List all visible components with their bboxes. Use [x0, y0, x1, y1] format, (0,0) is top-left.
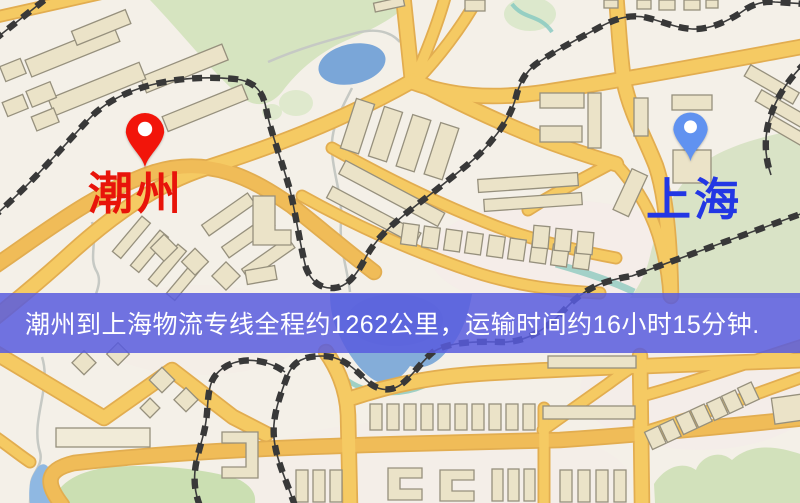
origin-pin[interactable] [121, 102, 169, 172]
map-screenshot: 潮州 上海 潮州到上海物流专线全程约1262公里，运输时间约16小时15分钟. [0, 0, 800, 503]
destination-pin[interactable] [669, 102, 712, 166]
blue-location-pin-icon [669, 102, 712, 166]
origin-label: 潮州 [88, 172, 184, 217]
map-canvas[interactable] [0, 0, 800, 503]
red-location-pin-icon [121, 102, 169, 172]
destination-label: 上海 [646, 178, 742, 223]
route-info-text: 潮州到上海物流专线全程约1262公里，运输时间约16小时15分钟. [0, 305, 760, 341]
route-info-banner: 潮州到上海物流专线全程约1262公里，运输时间约16小时15分钟. [0, 293, 800, 353]
